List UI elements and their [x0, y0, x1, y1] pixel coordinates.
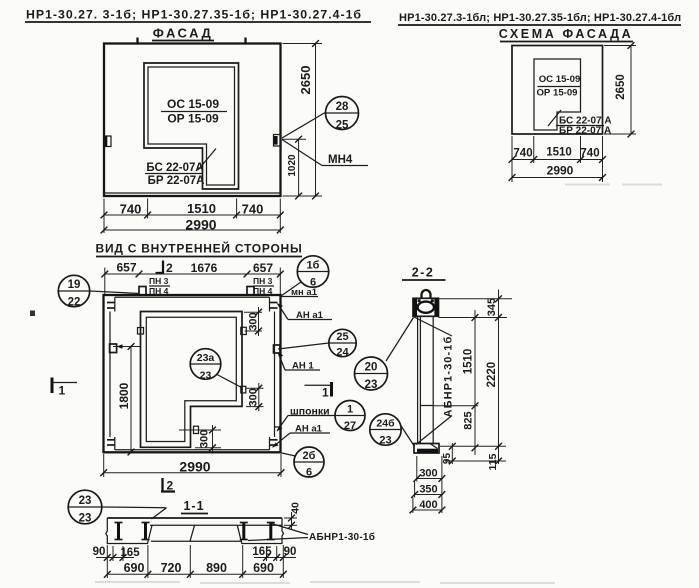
svg-text:ОС 15-09: ОС 15-09: [539, 74, 581, 85]
svg-text:25: 25: [336, 120, 349, 132]
svg-text:890: 890: [206, 561, 227, 575]
svg-text:23: 23: [79, 513, 92, 525]
svg-text:1б: 1б: [307, 260, 320, 272]
svg-text:90: 90: [93, 546, 106, 558]
svg-text:690: 690: [253, 561, 274, 575]
svg-text:825: 825: [463, 411, 475, 429]
svg-text:25: 25: [336, 331, 348, 343]
svg-text:40: 40: [289, 502, 301, 514]
svg-text:ПН 3: ПН 3: [253, 276, 273, 286]
svg-text:АБНР1-30-1б: АБНР1-30-1б: [309, 531, 375, 543]
svg-text:1: 1: [322, 386, 329, 400]
svg-text:БР 22-07А: БР 22-07А: [148, 175, 205, 187]
svg-text:АБНР1-30-1б: АБНР1-30-1б: [443, 336, 455, 418]
svg-text:740: 740: [513, 148, 532, 160]
svg-text:1510: 1510: [463, 349, 475, 375]
svg-text:90: 90: [284, 546, 297, 558]
svg-text:2650: 2650: [615, 74, 627, 100]
svg-text:2-2: 2-2: [412, 266, 435, 280]
svg-text:19: 19: [68, 279, 81, 291]
svg-text:23: 23: [365, 379, 378, 391]
svg-text:115: 115: [487, 453, 499, 470]
svg-text:300: 300: [248, 388, 260, 406]
svg-text:350: 350: [419, 484, 437, 496]
svg-text:720: 720: [161, 561, 182, 575]
svg-text:БС 22-07А: БС 22-07А: [146, 162, 203, 174]
svg-text:1510: 1510: [187, 201, 216, 216]
svg-text:ОР 15-09: ОР 15-09: [167, 112, 219, 126]
svg-text:300: 300: [248, 312, 260, 330]
svg-text:23: 23: [79, 495, 92, 507]
svg-text:95: 95: [442, 453, 453, 465]
svg-text:740: 740: [242, 202, 264, 217]
svg-text:24б: 24б: [376, 418, 395, 430]
svg-text:1020: 1020: [287, 154, 298, 177]
svg-text:2220: 2220: [486, 362, 498, 388]
svg-text:300: 300: [419, 468, 437, 480]
svg-text:165: 165: [252, 546, 272, 558]
svg-text:2650: 2650: [298, 66, 313, 95]
svg-text:23а: 23а: [197, 352, 215, 364]
svg-text:2990: 2990: [179, 458, 210, 474]
svg-text:657: 657: [253, 261, 273, 275]
svg-text:23: 23: [200, 370, 212, 382]
svg-text:2990: 2990: [185, 217, 216, 233]
svg-text:1-1: 1-1: [183, 499, 204, 513]
svg-text:ВИД С ВНУТРЕННЕЙ СТОРОНЫ: ВИД С ВНУТРЕННЕЙ СТОРОНЫ: [96, 241, 303, 256]
svg-text:1: 1: [347, 404, 353, 416]
svg-text:1: 1: [59, 384, 66, 398]
svg-text:24: 24: [336, 347, 349, 359]
svg-text:690: 690: [124, 561, 145, 575]
svg-text:740: 740: [580, 148, 599, 160]
svg-text:657: 657: [116, 261, 136, 275]
svg-text:2: 2: [166, 261, 173, 275]
svg-text:6: 6: [306, 467, 312, 479]
svg-text:ПН 3: ПН 3: [149, 276, 169, 286]
svg-text:БР 22-07 А: БР 22-07 А: [559, 126, 611, 137]
svg-text:740: 740: [120, 202, 142, 217]
svg-text:НР1-30.27.3-1бл; НР1-30.27.35-: НР1-30.27.3-1бл; НР1-30.27.35-1бл; НР1-3…: [399, 12, 681, 24]
svg-text:НР1-30.27. 3-1б; НР1-30.27.35: НР1-30.27. 3-1б; НР1-30.27.35-1б; НР1-30…: [26, 8, 362, 22]
svg-text:ОС 15-09: ОС 15-09: [167, 97, 219, 111]
svg-text:20: 20: [365, 362, 378, 374]
svg-text:165: 165: [120, 547, 140, 559]
svg-text:2: 2: [167, 479, 174, 493]
svg-text:28: 28: [336, 101, 349, 113]
svg-text:1800: 1800: [117, 382, 131, 409]
svg-text:23: 23: [379, 435, 391, 447]
svg-text:300: 300: [198, 430, 210, 448]
svg-text:СХЕМА ФАСАДА: СХЕМА ФАСАДА: [499, 27, 634, 41]
svg-text:345: 345: [486, 298, 498, 316]
svg-text:400: 400: [419, 499, 437, 511]
svg-text:27: 27: [344, 420, 356, 432]
svg-text:ФАСАД: ФАСАД: [153, 26, 214, 41]
svg-text:2990: 2990: [547, 164, 574, 178]
svg-text:1510: 1510: [546, 147, 572, 159]
svg-text:2б: 2б: [303, 450, 316, 462]
svg-text:ОР 15-09: ОР 15-09: [536, 88, 577, 99]
svg-text:22: 22: [68, 297, 81, 309]
svg-text:1676: 1676: [191, 261, 218, 275]
svg-text:МН4: МН4: [328, 154, 353, 166]
